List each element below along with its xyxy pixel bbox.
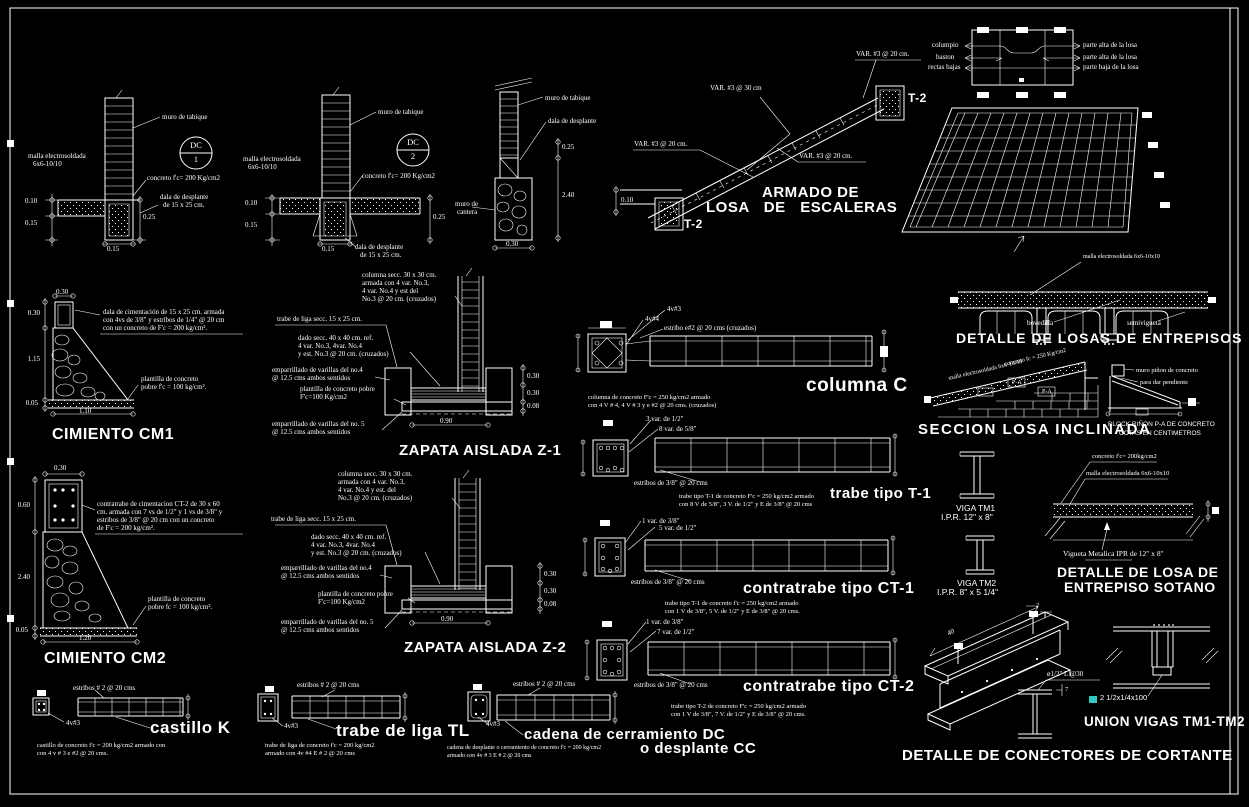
z1-dim-r3: 0.08 <box>527 402 539 410</box>
detail-t1-drawing <box>581 420 897 482</box>
cantera-dim-030: 0.30 <box>506 240 518 248</box>
z2-emp5-2: @ 12.5 cms ambos sentidos <box>281 626 359 634</box>
cm2-title: CIMIENTO CM2 <box>44 650 166 668</box>
tl-title: trabe de liga TL <box>336 721 470 741</box>
escaleras-t2-bottom-label: T-2 <box>684 218 703 232</box>
union-title: UNION VIGAS TM1-TM2 <box>1084 714 1245 730</box>
t1-nota-2: con 8 V de 5/8", 3 V. de 1/2" y E de 3/8… <box>679 501 812 508</box>
z1-dim-b: 0.90 <box>440 417 452 425</box>
escaleras-var20-mid-label: VAR. #3 @ 20 cm. <box>799 152 852 160</box>
dc1-dim-base: 0.15 <box>107 245 119 253</box>
z1-dado-3: y est. No.3 @ 20 cm. (cruzados) <box>298 350 389 358</box>
dc1-dim-025: 0.25 <box>143 213 155 221</box>
z2-dado-1: dado secc. 40 x 40 cm. ref. <box>311 533 386 541</box>
plan-parte-alta-2-label: parte alta de la losa <box>1083 53 1137 61</box>
t1-title: trabe tipo T-1 <box>830 485 931 502</box>
z2-columna-3: 4 var. No.4 y est. del <box>338 486 396 494</box>
plan-parte-alta-1-label: parte alta de la losa <box>1083 41 1137 49</box>
dc2-concreto-label: concreto f'c= 200 Kg/cm2 <box>362 172 435 180</box>
cm2-dim-b: 1.20 <box>79 634 91 642</box>
cm1-title: CIMIENTO CM1 <box>52 426 174 444</box>
cad-v3-label: 4v#3 <box>486 720 500 728</box>
ct1-nota-1: trabe tipo T-1 de concreto f'c = 250 kg/… <box>665 600 799 607</box>
tl-v3-label: 4v#3 <box>284 722 298 730</box>
inclinada-pinon-label-1: muro piñon de concreto <box>1136 367 1198 374</box>
sotano-malla-label: malla electrosoldada 6x6-10x10 <box>1086 470 1169 477</box>
t1-l2-label: 8 var. de 5/8" <box>659 425 696 433</box>
plan-rectas-label: rectas bajas <box>928 63 960 71</box>
ct2-title: contratrabe tipo CT-2 <box>743 678 914 696</box>
cad-nota-2: armado con 4v # 3 E # 2 @ 20 cms <box>447 753 532 760</box>
z1-trabe-label: trabe de liga secc. 15 x 25 cm. <box>277 315 362 323</box>
colc-nota-1: columna de concreto F'c = 250 kg/cm2 arm… <box>588 394 710 401</box>
cad-nota-1: cadena de desplante o cerramiento de con… <box>447 745 601 752</box>
tl-nota-2: armado con 4v #4 E # 2 @ 20 cms <box>265 750 355 757</box>
inclinada-pa2-label: P-A <box>1042 389 1052 396</box>
detail-losa-plan-drawing <box>965 27 1080 85</box>
cad-estribos-label: estribos # 2 @ 20 cms <box>513 680 575 688</box>
z2-dado-3: y est. No.3 @ 20 cm. (cruzados) <box>311 549 402 557</box>
escaleras-var20-top-label: VAR. #3 @ 20 cm. <box>856 50 909 58</box>
union-placa-label: 2 1/2x1/4x100 <box>1100 694 1147 703</box>
detail-cantera-drawing <box>472 78 560 250</box>
cm1-plantilla-2: pobre f'c = 100 kg/cm². <box>141 383 206 391</box>
cm2-dim-l2: 2.40 <box>8 573 30 581</box>
escaleras-var30-label: VAR. #3 @ 30 cm <box>710 84 762 92</box>
ct2-nota-2: con 1 V de 3/8", 7 V. de 1/2" y E de 3/8… <box>671 711 806 718</box>
z2-emp5-1: emparrillado de varillas del no. 5 <box>281 618 374 626</box>
cm1-nota-3: con un concreto de F'c = 200 kg/cm². <box>103 324 207 332</box>
z2-dim-b: 0.90 <box>441 615 453 623</box>
t1-estribos-label: estribos de 3/8" @ 20 cms <box>634 479 708 487</box>
entrepisos-bovedilla-label: bovedilla <box>1027 319 1053 327</box>
z1-plantilla-1: plantilla de concreto pobre <box>300 385 375 393</box>
plan-baston-label: baston <box>936 53 954 61</box>
escaleras-t2-top-label: T-2 <box>908 92 927 106</box>
z1-dado-2: 4 var. No.3, 4var. No.4 <box>298 342 362 350</box>
cast-nota-1: castillo de concreto f'c = 200 kg/cm2 ar… <box>37 742 165 749</box>
inclinada-pinon-label-2: para dar pendiente <box>1140 379 1188 386</box>
colc-nota-2: con 4 V # 4, 4 V # 3 y e #2 @ 20 cms. (c… <box>588 402 716 409</box>
cad-title-2: o desplante CC <box>640 740 756 757</box>
dc1-dala-label-1: dala de desplante <box>160 193 208 201</box>
dc2-badge-num: 2 <box>403 152 423 162</box>
entrepisos-semivigueta-label: semivigueta <box>1127 319 1161 327</box>
z2-columna-4: No.3 @ 20 cm. (cruzados) <box>338 494 412 502</box>
escaleras-dim-010: 0.10 <box>621 196 633 204</box>
dc1-dim-015: 0.15 <box>25 219 37 227</box>
dc2-dim-015: 0.15 <box>245 221 257 229</box>
ct2-l1-label: 1 var. de 3/8" <box>646 618 683 626</box>
cm1-dim-top: 0.30 <box>56 288 68 296</box>
tl-estribos-label: estribos # 2 @ 20 cms <box>297 681 359 689</box>
cm1-nota-1: dala de cimentación de 15 x 25 cm. armad… <box>103 308 224 316</box>
cast-nota-2: con 4 v # 3 e #2 @ 20 cms. <box>37 750 108 757</box>
plan-parte-baja-label: parte baja de la losa <box>1083 63 1139 71</box>
z1-columna-3: 4 var. No.4 y est del <box>362 287 418 295</box>
cantera-label-2: cantera <box>457 208 477 216</box>
ct1-l2-label: 5 var. de 1/2" <box>659 524 696 532</box>
z2-columna-1: columna secc. 30 x 30 cm. <box>338 470 412 478</box>
dc2-dala-label-2: de 15 x 25 cm. <box>360 251 401 259</box>
ct1-title: contratrabe tipo CT-1 <box>743 580 914 598</box>
conect-dim-7: 7 <box>1065 686 1068 693</box>
dc1-badge-num: 1 <box>186 155 206 165</box>
viga-tm1-size-label: I.P.R. 12" x 8" <box>941 513 993 523</box>
cm2-dim-l1: 0.60 <box>8 501 30 509</box>
detail-ct2-drawing <box>585 621 897 684</box>
plate-marker-icon <box>1089 696 1097 703</box>
dc1-concreto-label: concreto f'c= 200 Kg/cm2 <box>147 174 220 182</box>
cm1-plantilla-1: plantilla de concreto <box>141 375 198 383</box>
dc2-dim-base: 0.15 <box>322 245 334 253</box>
cm2-nota-2: cm. armada con 7 vs de 1/2" y 1 vs de 3/… <box>97 508 222 516</box>
cm1-dim-b: 1.10 <box>79 407 91 415</box>
inclinada-pa1-label: P-A <box>1012 380 1022 387</box>
dc1-dala-label-2: de 15 x 25 cm. <box>163 201 204 209</box>
z2-columna-2: armada con 4 var. No.3, <box>338 478 405 486</box>
dc1-malla-label-1: malla electrosoldada <box>28 152 86 160</box>
z1-plantilla-2: F'c=100 Kg/cm2 <box>300 393 347 401</box>
z2-trabe-label: trabe de liga secc. 15 x 25 cm. <box>271 515 356 523</box>
cm2-plantilla-2: pobre fc = 100 kg/cm². <box>148 603 212 611</box>
colc-title: columna C <box>806 375 908 397</box>
z2-emp4-1: emparrillado de varillas del no.4 <box>281 564 372 572</box>
ct1-estribos-label: estribos de 3/8" @ 20 cms <box>631 578 705 586</box>
sotano-vigueta-label: Vigueta Metalica IPR de 12" x 8" <box>1063 550 1164 559</box>
colc-v4-label: 4v#4 <box>645 315 659 323</box>
cm2-dim-top: 0.30 <box>54 464 66 472</box>
z2-dim-r2: 0.30 <box>544 587 556 595</box>
z2-title: ZAPATA AISLADA Z-2 <box>404 639 566 656</box>
inclinada-title: SECCION LOSA INCLINADA <box>918 421 1151 438</box>
ct2-nota-1: trabe tipo T-2 de concreto F'c = 250 kg/… <box>671 703 806 710</box>
cm2-nota-4: de F'c = 200 kg/cm². <box>97 524 155 532</box>
conect-title: DETALLE DE CONECTORES DE CORTANTE <box>902 747 1233 764</box>
cantera-muro-label: muro de tabique <box>545 94 591 102</box>
dc1-muro-label: muro de tabique <box>162 113 208 121</box>
detail-losa-mesh-drawing <box>902 92 1170 252</box>
cast-v3-label: 4v#3 <box>66 719 80 727</box>
dc1-malla-label-2: 6x6-10/10 <box>33 160 62 168</box>
z1-columna-4: No.3 @ 20 cm. (cruzados) <box>362 295 436 303</box>
z1-columna-2: armada con 4 var. No.3, <box>362 279 429 287</box>
dc2-dala-label-1: dala de desplante <box>355 243 403 251</box>
sotano-title-2: ENTREPISO SOTANO <box>1064 579 1216 595</box>
z2-plantilla-1: plantilla de concreto pobre <box>318 590 393 598</box>
cm2-nota-3: estribos de 3/8" @ 20 cm con un concreto <box>97 516 214 524</box>
z1-dado-1: dado secc. 40 x 40 cm. ref. <box>298 334 373 342</box>
t1-l1-label: 3 var. de 1/2" <box>646 415 683 423</box>
z2-emp4-2: @ 12.5 cms ambos sentidos <box>281 572 359 580</box>
colc-v3-label: 4v#3 <box>667 305 681 313</box>
plan-columpio-label: columpio <box>932 41 958 49</box>
z1-title: ZAPATA AISLADA Z-1 <box>399 442 561 459</box>
conect-dim-2: 2 <box>1036 602 1039 609</box>
dc2-badge: DC <box>403 138 423 148</box>
cm1-dim-l2: 1.15 <box>18 355 40 363</box>
escaleras-title-2: LOSA DE ESCALERAS <box>706 199 897 216</box>
entrepisos-malla-label: malla electrosoldada 6x6-10x10 <box>1083 254 1160 261</box>
cantera-label-1: muro de <box>455 200 478 208</box>
dc2-dim-025: 0.25 <box>433 213 445 221</box>
detail-columna-c-drawing <box>576 310 888 372</box>
z1-emp4-2: @ 12.5 cms ambos sentidos <box>272 374 350 382</box>
z1-dim-r2: 0.30 <box>527 389 539 397</box>
colc-estribo-label: estribo e#2 @ 20 cms (cruzados) <box>664 324 756 332</box>
detail-ct1-drawing <box>583 520 895 581</box>
dc2-malla-label-2: 6x6-10/10 <box>248 163 277 171</box>
cantera-dim-025: 0.25 <box>562 143 574 151</box>
cm1-dim-l1: 0.30 <box>18 309 40 317</box>
ct2-estribos-label: estribos de 3/8" @ 20 cms <box>634 681 708 689</box>
dc2-muro-label: muro de tabique <box>378 108 424 116</box>
z1-emp5-2: @ 12.5 cms ambos sentidos <box>272 428 350 436</box>
sotano-title-1: DETALLE DE LOSA DE <box>1057 564 1218 580</box>
detail-cm2-drawing <box>33 472 243 644</box>
z1-emp4-1: emparrillado de varillas del no.4 <box>272 366 363 374</box>
cast-title: castillo K <box>150 718 231 738</box>
z2-dim-r3: 0.08 <box>544 600 556 608</box>
ct2-l2-label: 7 var. de 1/2" <box>657 628 694 636</box>
z1-dim-r1: 0.30 <box>527 372 539 380</box>
detail-union-drawing <box>1106 624 1218 696</box>
cm2-plantilla-1: plantilla de concreto <box>148 595 205 603</box>
cm2-nota-1: contratrabe de cimentacion CT-2 de 30 x … <box>97 500 220 508</box>
dc1-dim-010: 0.10 <box>25 197 37 205</box>
entrepisos-title: DETALLE DE LOSAS DE ENTREPISOS <box>956 330 1242 346</box>
z2-dim-r1: 0.30 <box>544 570 556 578</box>
escaleras-var20-left-label: VAR. #3 @ 20 cm. <box>634 140 687 148</box>
t1-nota-1: trabe tipo T-1 de concreto F'c = 250 kg/… <box>679 493 814 500</box>
viga-tm2-size-label: I.P.R. 8" x 5 1/4" <box>937 588 998 598</box>
z1-columna-1: columna secc. 30 x 30 cm. <box>362 271 436 279</box>
cad-sheet: muro de tabique malla electrosoldada 6x6… <box>0 0 1249 807</box>
dc2-dim-010: 0.10 <box>245 199 257 207</box>
sotano-concreto-label: concreto f'c= 200kg/cm2 <box>1092 453 1157 460</box>
z2-dado-2: 4 var. No.3, 4var. No.4 <box>311 541 375 549</box>
cm1-nota-2: con 4vs de 3/8" y estribos de 1/4" @ 20 … <box>103 316 224 324</box>
conect-tornillo-label: ø1/2" L @30 <box>1047 670 1083 678</box>
z2-plantilla-2: F'c=100 Kg/cm2 <box>318 598 365 606</box>
cantera-dim-240: 2.40 <box>562 191 574 199</box>
cantera-dala-label: dala de desplante <box>548 117 596 125</box>
cm1-dim-l3: 0.05 <box>16 399 38 407</box>
dc1-badge: DC <box>186 141 206 151</box>
cast-estribos-label: estribos # 2 @ 20 cms <box>73 684 135 692</box>
cm2-dim-l3: 0.05 <box>6 626 28 634</box>
dc2-malla-label-1: malla electrosoldada <box>243 155 301 163</box>
tl-nota-1: trabe de liga de concreto f'c = 200 kg/c… <box>265 742 375 749</box>
z1-emp5-1: emparrillado de varillas del no. 5 <box>272 420 365 428</box>
ct1-nota-2: con 1 V de 3/8", 5 V. de 1/2" y E de 3/8… <box>665 608 800 615</box>
